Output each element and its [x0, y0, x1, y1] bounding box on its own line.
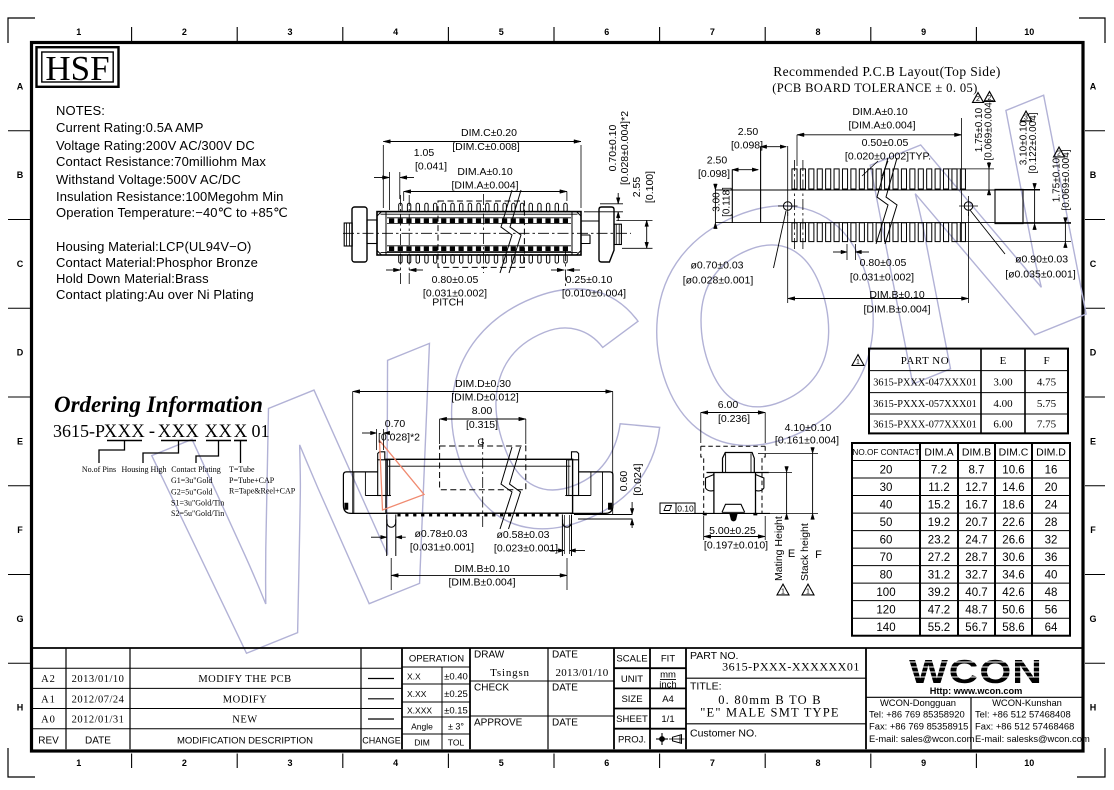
svg-text:7.75: 7.75 [1037, 419, 1057, 431]
svg-text:[0.069±0.004]: [0.069±0.004] [984, 99, 995, 160]
svg-text:Fax: +86 512 57468468: Fax: +86 512 57468468 [975, 721, 1074, 732]
svg-text:26.6: 26.6 [1002, 535, 1024, 547]
svg-text:1: 1 [856, 359, 860, 366]
svg-text:36: 36 [1045, 552, 1058, 564]
svg-text:100: 100 [876, 587, 895, 599]
svg-text:E: E [788, 548, 795, 560]
svg-text:A4: A4 [662, 694, 674, 705]
svg-text:6: 6 [604, 758, 609, 768]
svg-text:[0.098]: [0.098] [731, 140, 763, 152]
svg-text:10: 10 [1024, 758, 1034, 768]
svg-text:0.80±0.05: 0.80±0.05 [432, 274, 479, 286]
svg-text:1: 1 [76, 27, 81, 37]
svg-text:R=Tape&Reel+CAP: R=Tape&Reel+CAP [229, 487, 296, 496]
svg-text:A: A [17, 81, 24, 91]
svg-text:120: 120 [876, 605, 895, 617]
svg-text:1/1: 1/1 [661, 714, 674, 725]
svg-text:2012/07/24: 2012/07/24 [72, 694, 125, 705]
svg-text:X: X [234, 422, 248, 442]
svg-text:DIM.C: DIM.C [999, 447, 1029, 459]
svg-text:S1=3u"Gold/Tin: S1=3u"Gold/Tin [171, 499, 224, 508]
svg-text:H: H [1090, 703, 1097, 713]
svg-text:DIM.A: DIM.A [924, 447, 953, 459]
svg-text:ø0.70±0.03: ø0.70±0.03 [690, 260, 743, 272]
svg-text:0.50±0.05: 0.50±0.05 [862, 137, 909, 149]
svg-text:16: 16 [1045, 465, 1058, 477]
svg-text:REV: REV [38, 736, 59, 747]
svg-text:WCON-Dongguan: WCON-Dongguan [880, 697, 956, 708]
svg-text:PART NO: PART NO [901, 355, 949, 367]
svg-text:10: 10 [1024, 27, 1034, 37]
svg-text:40: 40 [880, 500, 893, 512]
svg-text:0.10: 0.10 [677, 504, 694, 514]
svg-text:XX: XX [205, 422, 233, 442]
svg-text:DIM.B: DIM.B [962, 447, 991, 459]
svg-text:CHECK: CHECK [474, 683, 509, 694]
svg-text:A1: A1 [41, 694, 56, 705]
svg-text:SCALE: SCALE [616, 654, 647, 665]
svg-text:58.6: 58.6 [1002, 622, 1024, 634]
svg-text:24.7: 24.7 [965, 535, 987, 547]
svg-text:[0.031±0.002]: [0.031±0.002] [850, 272, 914, 284]
svg-text:Contact Resistance:70milliohm: Contact Resistance:70milliohm Max [56, 154, 266, 169]
svg-text:4: 4 [393, 758, 398, 768]
svg-text:8: 8 [815, 27, 820, 37]
svg-text:[0.069±0.004]: [0.069±0.004] [1061, 149, 1072, 210]
svg-text:5.75: 5.75 [1037, 398, 1057, 410]
svg-text:±0.40: ±0.40 [444, 672, 468, 683]
svg-text:Current Rating:0.5A AMP: Current Rating:0.5A AMP [56, 120, 204, 135]
svg-text:A2: A2 [41, 674, 56, 685]
svg-text:MODIFY THE PCB: MODIFY THE PCB [198, 674, 291, 685]
svg-text:2013/01/10: 2013/01/10 [555, 667, 608, 679]
svg-text:ø0.78±0.03: ø0.78±0.03 [414, 528, 467, 540]
svg-text:MODIFY: MODIFY [223, 694, 267, 705]
svg-text:23.2: 23.2 [928, 535, 950, 547]
svg-text:E: E [1090, 436, 1096, 446]
svg-text:[0.028±0.004]*2: [0.028±0.004]*2 [619, 111, 631, 185]
svg-text:40.7: 40.7 [965, 587, 987, 599]
svg-text:80: 80 [880, 570, 893, 582]
svg-text:D: D [17, 348, 24, 358]
svg-text:7: 7 [710, 27, 715, 37]
svg-text:48.7: 48.7 [965, 605, 987, 617]
svg-text:3615-PXXX-XXXXXX01: 3615-PXXX-XXXXXX01 [722, 660, 860, 674]
svg-text:FIT: FIT [661, 654, 675, 665]
svg-text:C: C [17, 259, 24, 269]
svg-text:24: 24 [1045, 500, 1058, 512]
svg-text:0.70±0.10: 0.70±0.10 [607, 125, 619, 172]
svg-text:3: 3 [287, 758, 292, 768]
svg-text:10.6: 10.6 [1002, 465, 1024, 477]
svg-text:12.7: 12.7 [965, 482, 987, 494]
svg-text:[0.020±0.002]TYP.: [0.020±0.002]TYP. [845, 151, 931, 163]
svg-text:APPROVE: APPROVE [474, 718, 523, 729]
svg-text:48: 48 [1045, 587, 1058, 599]
svg-text:39.2: 39.2 [928, 587, 950, 599]
svg-text:Housing Material:LCP(UL94V−O): Housing Material:LCP(UL94V−O) [56, 239, 251, 254]
svg-text:3615-PXXX-047XXX01: 3615-PXXX-047XXX01 [873, 377, 977, 388]
svg-text:2.55: 2.55 [631, 177, 643, 198]
svg-text:Tel: +86 512 57468408: Tel: +86 512 57468408 [975, 708, 1071, 719]
svg-text:2: 2 [182, 27, 187, 37]
svg-text:9: 9 [921, 758, 926, 768]
svg-text:9: 9 [921, 27, 926, 37]
svg-text:5.00±0.25: 5.00±0.25 [709, 525, 756, 537]
svg-text:[0.024]: [0.024] [632, 463, 644, 495]
svg-text:4.75: 4.75 [1037, 376, 1057, 388]
svg-text:Tsingsn: Tsingsn [490, 667, 530, 679]
svg-text:DIM.D±0.30: DIM.D±0.30 [455, 378, 511, 390]
svg-text:DRAW: DRAW [474, 650, 505, 661]
svg-text:3615-PXXX-057XXX01: 3615-PXXX-057XXX01 [873, 399, 977, 410]
svg-text:[ø0.028±0.001]: [ø0.028±0.001] [683, 275, 754, 287]
svg-text:[0.122±0.004]: [0.122±0.004] [1028, 112, 1039, 173]
svg-text:X.XXX: X.XXX [407, 706, 432, 716]
svg-text:8: 8 [815, 758, 820, 768]
svg-text:[0.161±0.004]: [0.161±0.004] [775, 435, 839, 447]
svg-text:[ø0.035±0.001]: [ø0.035±0.001] [1005, 269, 1076, 281]
svg-text:1.05: 1.05 [414, 147, 435, 159]
svg-text:[DIM.A±0.004]: [DIM.A±0.004] [848, 120, 915, 132]
svg-text:64: 64 [1045, 622, 1058, 634]
svg-text:6: 6 [604, 27, 609, 37]
svg-text:5: 5 [499, 758, 504, 768]
svg-text:28: 28 [1045, 517, 1058, 529]
svg-text:SHEET: SHEET [616, 714, 648, 725]
svg-text:[0.118]: [0.118] [722, 187, 733, 217]
svg-text:30: 30 [880, 482, 893, 494]
svg-text:DIM.A±0.10: DIM.A±0.10 [852, 106, 908, 118]
svg-text:Customer NO.: Customer NO. [690, 728, 757, 740]
svg-text:E: E [1000, 355, 1007, 367]
svg-text:Housing High: Housing High [121, 465, 166, 474]
svg-text:01: 01 [252, 421, 270, 441]
svg-text:Http: www.wcon.com: Http: www.wcon.com [930, 686, 1023, 696]
svg-text:DATE: DATE [552, 718, 578, 729]
svg-text:1: 1 [76, 758, 81, 768]
svg-text:DIM.A±0.10: DIM.A±0.10 [457, 166, 513, 178]
svg-text:NOTES:: NOTES: [56, 103, 105, 118]
svg-text:(PCB BOARD TOLERANCE ± 0. 05): (PCB BOARD TOLERANCE ± 0. 05) [772, 81, 978, 95]
svg-text:[0.041]: [0.041] [415, 161, 447, 173]
svg-text:G: G [477, 437, 484, 447]
svg-text:HSF: HSF [45, 49, 109, 88]
svg-text:E-mail: sales@wcon.com: E-mail: sales@wcon.com [869, 733, 975, 744]
svg-text:1: 1 [781, 588, 785, 595]
svg-text:55.2: 55.2 [928, 622, 950, 634]
svg-text:3.00: 3.00 [993, 376, 1013, 388]
svg-text:DIM.C±0.20: DIM.C±0.20 [461, 127, 517, 139]
svg-text:PROJ.: PROJ. [618, 735, 646, 746]
svg-text:[DIM.D±0.012]: [DIM.D±0.012] [451, 392, 519, 404]
svg-text:SIZE: SIZE [621, 694, 642, 705]
svg-text:Operation Temperature:−40℃ t: Operation Temperature:−40℃ to +85℃ [56, 205, 288, 220]
svg-text:2013/01/10: 2013/01/10 [72, 674, 125, 685]
svg-text:G1=3u"Gold: G1=3u"Gold [171, 476, 213, 485]
svg-text:±0.15: ±0.15 [444, 706, 468, 717]
svg-text:Recommended P.C.B Layout(Top S: Recommended P.C.B Layout(Top Side) [773, 64, 1001, 79]
svg-text:DATE: DATE [552, 650, 578, 661]
svg-text:DIM.B±0.10: DIM.B±0.10 [869, 289, 925, 301]
svg-text:[DIM.B±0.004]: [DIM.B±0.004] [863, 304, 930, 316]
svg-text:A: A [1090, 81, 1097, 91]
svg-text:42.6: 42.6 [1002, 587, 1024, 599]
svg-text:G: G [1089, 614, 1096, 624]
svg-text:WCON-Kunshan: WCON-Kunshan [992, 697, 1062, 708]
svg-text:DIM: DIM [414, 738, 430, 748]
svg-text:30.6: 30.6 [1002, 552, 1024, 564]
svg-text:4.10±0.10: 4.10±0.10 [785, 422, 832, 434]
svg-text:P=Tube+CAP: P=Tube+CAP [229, 476, 275, 485]
svg-text:8.00: 8.00 [472, 405, 493, 417]
svg-text:6.00: 6.00 [993, 419, 1013, 431]
svg-text:[DIM.A±0.004]: [DIM.A±0.004] [451, 180, 518, 192]
svg-text:0.80±0.05: 0.80±0.05 [860, 257, 907, 269]
svg-text:20.7: 20.7 [965, 517, 987, 529]
svg-text:B: B [1090, 170, 1097, 180]
svg-text:22.6: 22.6 [1002, 517, 1024, 529]
svg-text:7: 7 [710, 758, 715, 768]
svg-text:140: 140 [876, 622, 895, 634]
svg-text:32: 32 [1045, 535, 1058, 547]
svg-text:-: - [149, 422, 155, 442]
svg-text:[0.031±0.001]: [0.031±0.001] [410, 542, 474, 554]
svg-text:4: 4 [393, 27, 398, 37]
svg-text:34.6: 34.6 [1002, 570, 1024, 582]
svg-text:6.00: 6.00 [718, 399, 739, 411]
svg-text:3615-PXXX-077XXX01: 3615-PXXX-077XXX01 [873, 420, 977, 431]
svg-text:[0.023±0.001]: [0.023±0.001] [494, 543, 558, 555]
svg-text:Fax: +86 769 85358915: Fax: +86 769 85358915 [869, 721, 968, 732]
svg-text:S2=5u"Gold/Tin: S2=5u"Gold/Tin [171, 509, 224, 518]
svg-text:7.2: 7.2 [931, 465, 947, 477]
svg-text:F: F [1043, 355, 1049, 367]
svg-text:"E" MALE SMT TYPE: "E" MALE SMT TYPE [700, 706, 840, 720]
svg-text:F: F [17, 525, 23, 535]
svg-text:XXX: XXX [104, 422, 146, 442]
svg-text:MODIFICATION DESCRIPTION: MODIFICATION DESCRIPTION [177, 736, 313, 747]
svg-text:DATE: DATE [552, 683, 578, 694]
svg-text:Ordering Information: Ordering Information [54, 392, 263, 417]
svg-text:Withstand Voltage:500V AC/DC: Withstand Voltage:500V AC/DC [56, 172, 241, 187]
svg-text:56.7: 56.7 [965, 622, 987, 634]
svg-text:[0.236]: [0.236] [718, 413, 750, 425]
svg-text:Mating Height: Mating Height [773, 516, 785, 581]
svg-text:16.7: 16.7 [965, 500, 987, 512]
svg-text:0.25±0.10: 0.25±0.10 [566, 274, 613, 286]
svg-text:E-mail: salesks@wcon.com: E-mail: salesks@wcon.com [975, 733, 1090, 744]
svg-text:50.6: 50.6 [1002, 605, 1024, 617]
svg-text:WCON: WCON [909, 653, 1043, 691]
svg-text:56: 56 [1045, 605, 1058, 617]
svg-text:0.70: 0.70 [385, 418, 406, 430]
svg-text:1: 1 [806, 588, 810, 595]
svg-text:19.2: 19.2 [928, 517, 950, 529]
svg-text:T=Tube: T=Tube [229, 465, 255, 474]
svg-text:G: G [16, 614, 23, 624]
svg-text:2012/01/31: 2012/01/31 [72, 715, 125, 726]
svg-text:27.2: 27.2 [928, 552, 950, 564]
svg-text:Angle: Angle [411, 722, 433, 732]
svg-text:60: 60 [880, 535, 893, 547]
svg-text:[DIM.C±0.008]: [DIM.C±0.008] [452, 141, 520, 153]
svg-text:inch: inch [659, 680, 676, 691]
svg-text:G2=5u"Gold: G2=5u"Gold [171, 488, 213, 497]
svg-text:47.2: 47.2 [928, 605, 950, 617]
svg-text:ø0.58±0.03: ø0.58±0.03 [496, 529, 549, 541]
svg-text:40: 40 [1045, 570, 1058, 582]
svg-text:2: 2 [182, 758, 187, 768]
svg-text:ø0.90±0.03: ø0.90±0.03 [1015, 254, 1068, 266]
svg-text:UNIT: UNIT [621, 674, 643, 685]
svg-text:32.7: 32.7 [965, 570, 987, 582]
svg-text:±0.25: ±0.25 [444, 689, 468, 700]
svg-text:Stack height: Stack height [799, 523, 811, 581]
svg-text:2: 2 [976, 96, 980, 103]
svg-text:Contact Plating: Contact Plating [171, 465, 221, 474]
svg-text:XXX: XXX [158, 422, 200, 442]
svg-text:[0.315]: [0.315] [466, 419, 498, 431]
svg-text:DATE: DATE [85, 736, 111, 747]
svg-text:8.7: 8.7 [969, 465, 985, 477]
svg-text:18.6: 18.6 [1002, 500, 1024, 512]
svg-text:Contact plating:Au over Ni: Contact plating:Au over Ni Plating [56, 287, 254, 302]
svg-text:NEW: NEW [232, 715, 257, 726]
svg-text:0.60: 0.60 [618, 471, 630, 492]
svg-text:[0.098]: [0.098] [698, 168, 730, 180]
svg-text:3615-P: 3615-P [53, 421, 105, 441]
svg-text:4.00: 4.00 [993, 398, 1013, 410]
svg-text:X.X: X.X [407, 672, 421, 682]
svg-text:[0.197±0.010]: [0.197±0.010] [704, 540, 768, 552]
svg-text:[DIM.B±0.004]: [DIM.B±0.004] [448, 577, 515, 589]
svg-text:11.2: 11.2 [928, 482, 950, 494]
svg-text:± 3°: ± 3° [448, 722, 464, 732]
svg-text:OPERATION: OPERATION [409, 654, 464, 665]
svg-text:H: H [17, 703, 24, 713]
svg-text:14.6: 14.6 [1002, 482, 1024, 494]
svg-text:2.50: 2.50 [707, 155, 728, 167]
svg-text:[0.100]: [0.100] [644, 171, 656, 203]
svg-text:28.7: 28.7 [965, 552, 987, 564]
svg-text:B: B [17, 170, 24, 180]
svg-text:E: E [17, 436, 23, 446]
svg-text:TOL: TOL [448, 738, 465, 748]
svg-text:NO.OF CONTACT: NO.OF CONTACT [852, 448, 919, 457]
svg-text:20: 20 [1045, 482, 1058, 494]
svg-text:F: F [1090, 525, 1096, 535]
svg-text:F: F [815, 549, 822, 561]
svg-text:Voltage Rating:200V AC/300V: Voltage Rating:200V AC/300V DC [56, 138, 255, 153]
svg-text:X.XX: X.XX [407, 689, 427, 699]
svg-text:15.2: 15.2 [928, 500, 950, 512]
svg-text:A0: A0 [41, 715, 56, 726]
svg-text:Insulation Resistance:100Mego: Insulation Resistance:100Megohm Min [56, 189, 284, 204]
svg-text:Hold Down Material:Brass: Hold Down Material:Brass [56, 271, 209, 286]
svg-text:5: 5 [499, 27, 504, 37]
svg-text:Contact Material:Phosphor Br: Contact Material:Phosphor Bronze [56, 255, 258, 270]
svg-text:31.2: 31.2 [928, 570, 950, 582]
svg-text:TITLE:: TITLE: [690, 681, 722, 693]
svg-text:CHANGE: CHANGE [362, 736, 401, 746]
svg-text:No.of Pins: No.of Pins [82, 465, 116, 474]
svg-text:50: 50 [880, 517, 893, 529]
svg-text:[0.010±0.004]: [0.010±0.004] [562, 288, 626, 300]
svg-text:DIM.D: DIM.D [1036, 447, 1066, 459]
svg-text:2.50: 2.50 [738, 126, 759, 138]
svg-text:PITCH: PITCH [432, 297, 464, 309]
svg-text:Tel: +86 769 85358920: Tel: +86 769 85358920 [869, 708, 965, 719]
svg-text:20: 20 [880, 465, 893, 477]
svg-text:70: 70 [880, 552, 893, 564]
svg-text:3: 3 [287, 27, 292, 37]
svg-text:DIM.B±0.10: DIM.B±0.10 [454, 563, 510, 575]
